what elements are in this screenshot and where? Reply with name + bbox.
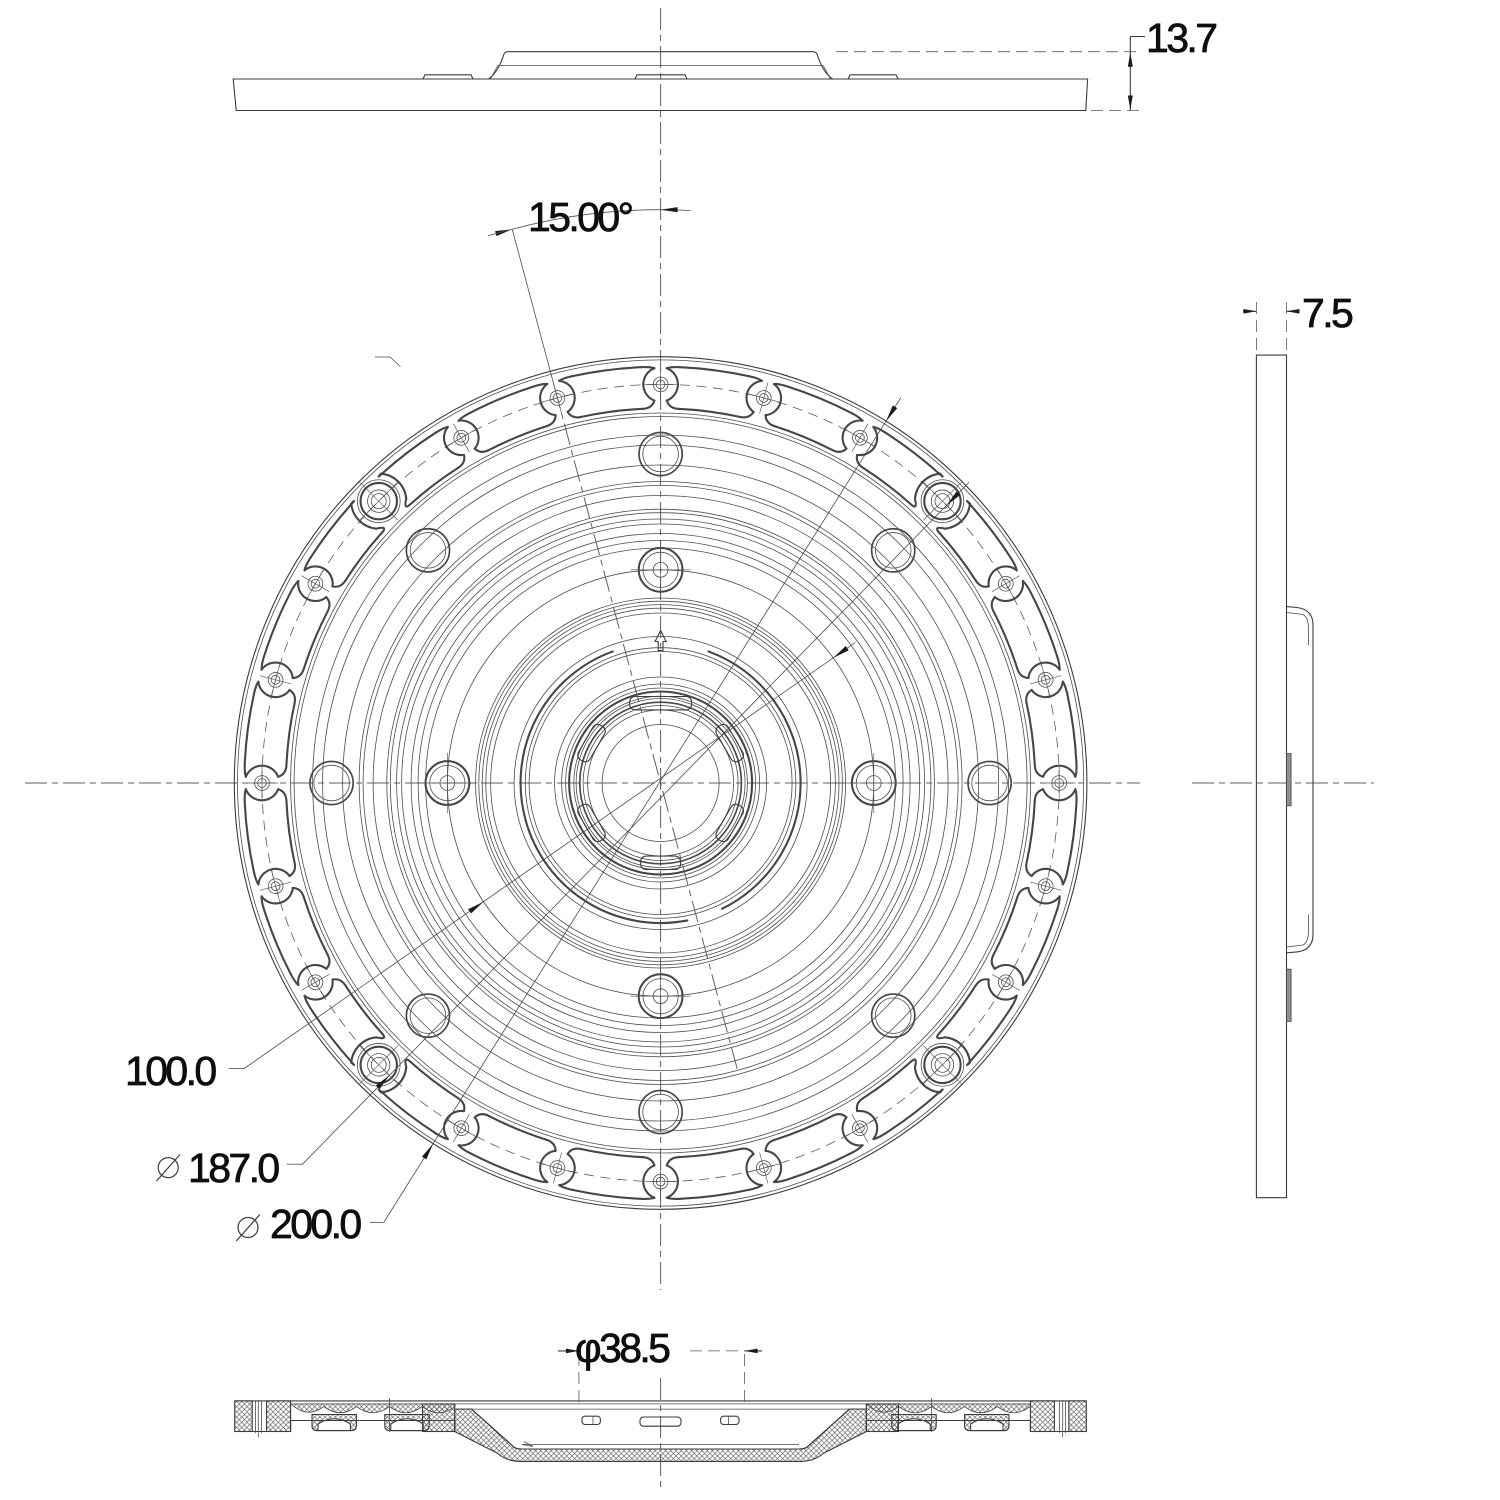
svg-text:7.5: 7.5 bbox=[1302, 290, 1353, 336]
svg-text:187.0: 187.0 bbox=[188, 1145, 279, 1191]
svg-text:100.0: 100.0 bbox=[125, 1048, 216, 1094]
svg-text:15.00°: 15.00° bbox=[528, 194, 632, 240]
svg-text:13.7: 13.7 bbox=[1146, 15, 1216, 61]
svg-text:200.0: 200.0 bbox=[270, 1201, 361, 1247]
svg-text:φ38.5: φ38.5 bbox=[575, 1325, 670, 1371]
